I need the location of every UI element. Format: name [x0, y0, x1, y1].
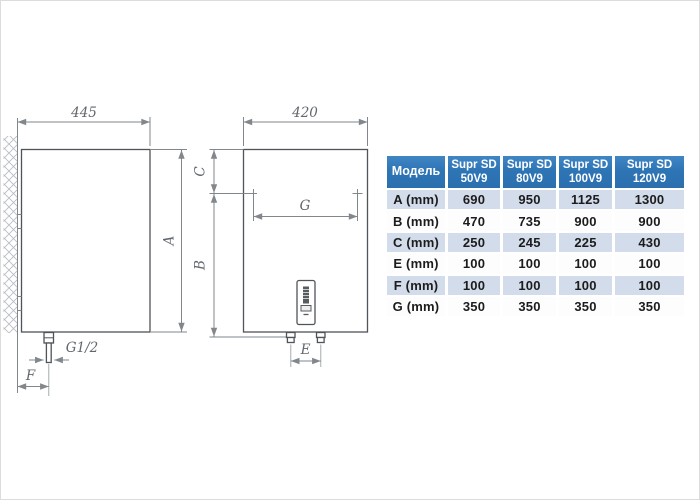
water-heater-spec-sheet: 445 A G1/2 F	[0, 0, 700, 500]
table-header-supr-sd-100v9: Supr SD 100V9	[559, 156, 612, 188]
heater-front-body	[244, 150, 368, 333]
row-label-g: G (mm)	[387, 297, 445, 316]
cell-c-100v9: 225	[559, 233, 612, 252]
side-view-pipe	[44, 333, 54, 363]
dim-label-b: B	[193, 260, 209, 271]
model-code: 80V9	[516, 172, 543, 186]
dimensions-table: Модель Supr SD 50V9 Supr SD 80V9 Supr SD…	[387, 156, 685, 316]
model-brand: Supr SD	[451, 158, 496, 172]
table-header-supr-sd-120v9: Supr SD 120V9	[615, 156, 684, 188]
cell-f-80v9: 100	[503, 276, 556, 295]
temperature-slider-knob	[301, 306, 311, 312]
model-code: 50V9	[461, 172, 488, 186]
cell-a-50v9: 690	[448, 190, 500, 209]
wall-hatch	[4, 136, 18, 333]
dim-label-c: C	[193, 166, 209, 177]
row-label-e: E (mm)	[387, 254, 445, 273]
cell-f-120v9: 100	[615, 276, 684, 295]
dim-label-depth-445: 445	[70, 105, 97, 121]
dim-label-e: E	[300, 342, 311, 358]
cell-g-100v9: 350	[559, 297, 612, 316]
heater-side-body	[22, 150, 151, 333]
cell-e-120v9: 100	[615, 254, 684, 273]
side-view-drawing: 445 A G1/2 F	[4, 105, 188, 396]
cell-b-80v9: 735	[503, 211, 556, 230]
dim-label-f: F	[25, 368, 36, 384]
temperature-slider-track	[303, 287, 309, 304]
model-code: 120V9	[633, 172, 666, 186]
cell-c-120v9: 430	[615, 233, 684, 252]
front-view-drawing: 420 C B G	[193, 105, 368, 367]
cell-f-50v9: 100	[448, 276, 500, 295]
table-header-supr-sd-80v9: Supr SD 80V9	[503, 156, 556, 188]
cell-g-80v9: 350	[503, 297, 556, 316]
cell-b-50v9: 470	[448, 211, 500, 230]
table-header-model: Модель	[387, 156, 445, 188]
cell-g-50v9: 350	[448, 297, 500, 316]
dim-label-a: A	[162, 235, 178, 247]
table-header-supr-sd-50v9: Supr SD 50V9	[448, 156, 500, 188]
row-label-b: B (mm)	[387, 211, 445, 230]
model-brand: Supr SD	[507, 158, 552, 172]
dim-label-g: G	[300, 198, 311, 214]
cell-b-100v9: 900	[559, 211, 612, 230]
cell-g-120v9: 350	[615, 297, 684, 316]
cell-a-80v9: 950	[503, 190, 556, 209]
cell-e-50v9: 100	[448, 254, 500, 273]
cell-f-100v9: 100	[559, 276, 612, 295]
model-code: 100V9	[569, 172, 602, 186]
row-label-c: C (mm)	[387, 233, 445, 252]
row-label-a: A (mm)	[387, 190, 445, 209]
cell-a-120v9: 1300	[615, 190, 684, 209]
model-brand: Supr SD	[627, 158, 672, 172]
front-view-pipes	[287, 333, 326, 343]
cell-a-100v9: 1125	[559, 190, 612, 209]
cell-c-80v9: 245	[503, 233, 556, 252]
cell-c-50v9: 250	[448, 233, 500, 252]
row-label-f: F (mm)	[387, 276, 445, 295]
model-brand: Supr SD	[563, 158, 608, 172]
dim-label-thread-g12: G1/2	[66, 340, 99, 356]
cell-e-80v9: 100	[503, 254, 556, 273]
cell-b-120v9: 900	[615, 211, 684, 230]
cell-e-100v9: 100	[559, 254, 612, 273]
dim-label-width-420: 420	[291, 105, 318, 121]
